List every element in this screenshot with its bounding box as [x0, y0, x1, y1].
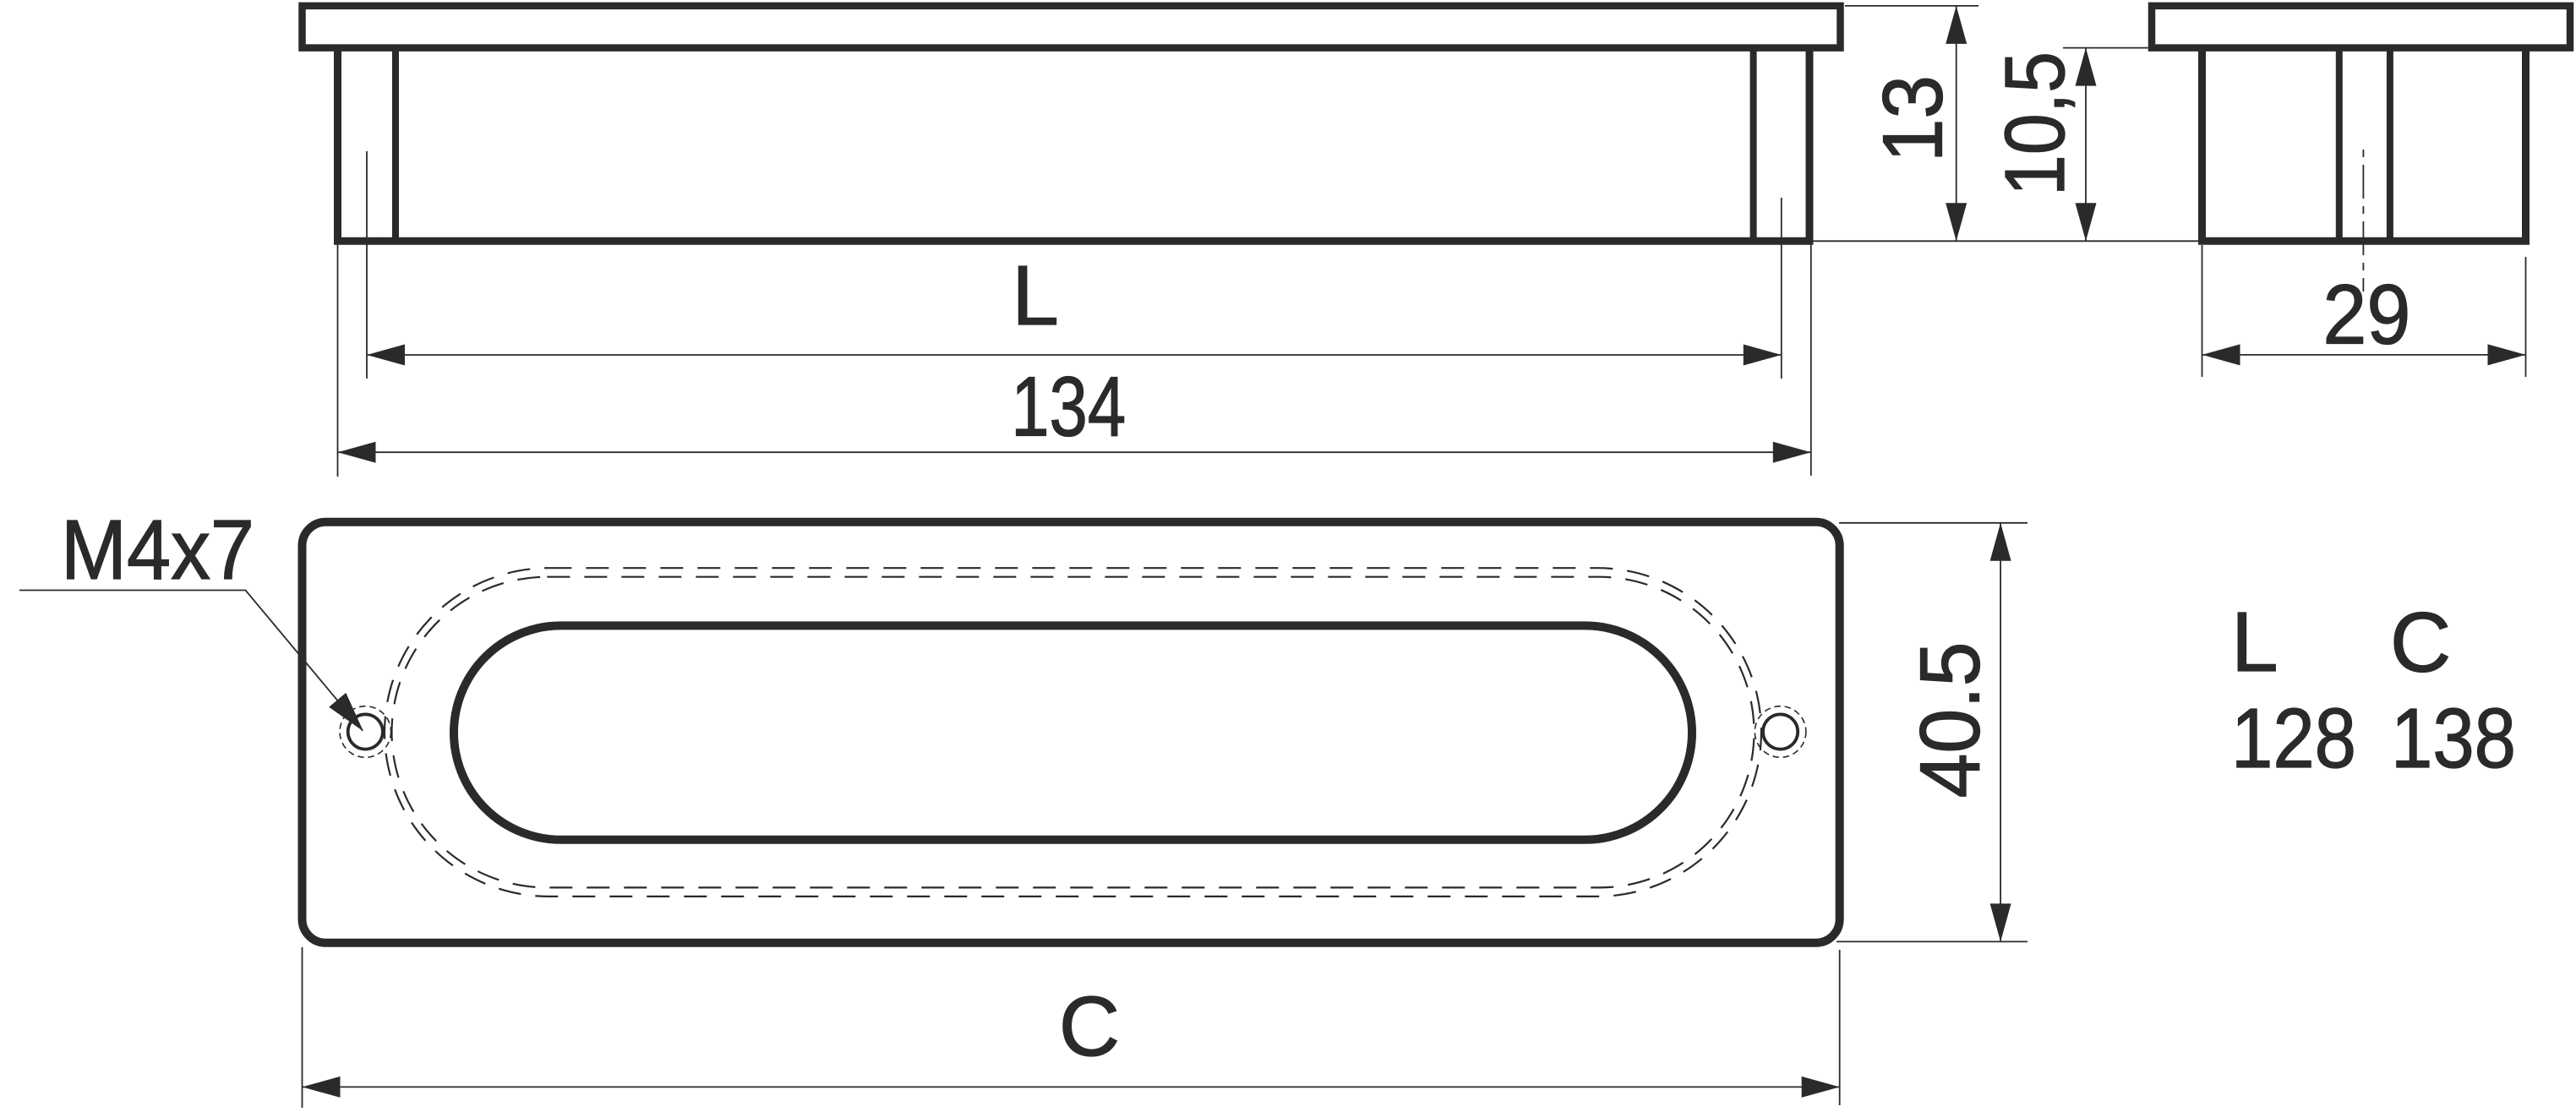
svg-text:C: C	[1059, 979, 1120, 1074]
svg-text:C: C	[2390, 596, 2451, 690]
svg-text:128: 128	[2231, 691, 2356, 786]
svg-text:40.5: 40.5	[1903, 642, 1998, 799]
svg-text:L: L	[1012, 248, 1059, 343]
svg-text:L: L	[2231, 595, 2279, 690]
svg-text:10,5: 10,5	[1988, 52, 2082, 196]
svg-text:134: 134	[1011, 360, 1126, 455]
svg-text:138: 138	[2391, 691, 2516, 786]
svg-text:13: 13	[1866, 75, 1961, 162]
svg-text:M4x7: M4x7	[61, 503, 254, 597]
svg-text:29: 29	[2322, 268, 2410, 362]
